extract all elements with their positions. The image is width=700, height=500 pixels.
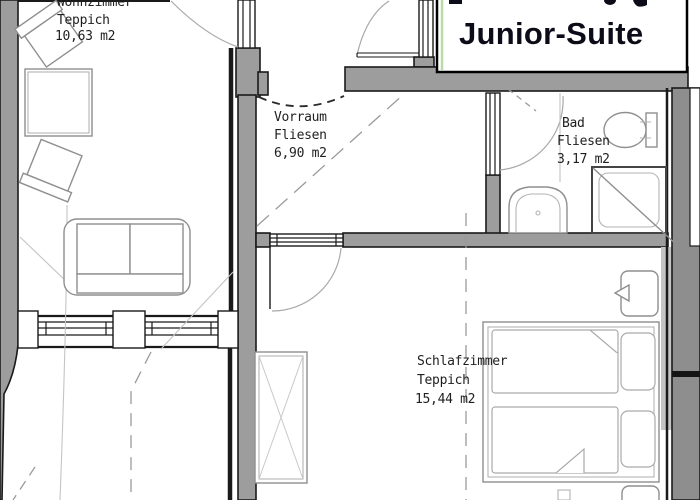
room-floor: Teppich [57, 13, 110, 28]
room-name: Vorraum [274, 110, 327, 125]
wall-stub-bedroom-door [256, 233, 270, 247]
table-outer [25, 69, 92, 136]
bed-pillow-top [621, 333, 655, 390]
sofa-back-cushion-left [77, 224, 130, 274]
door-frame-rect [419, 0, 433, 57]
floor-plan-screenshot: Wohnzimmer Teppich 10,63 m2 Vorraum Flie… [0, 0, 700, 500]
toilet-bowl [604, 113, 646, 148]
door-frame-rect [238, 0, 255, 48]
table [25, 69, 92, 136]
room-name: Wohnzimmer [57, 0, 133, 10]
neighbor-space-notch [690, 88, 700, 246]
room-label-vorraum: Vorraum Fliesen 6,90 m2 [274, 110, 327, 161]
door-frame-livingroom-top [238, 0, 255, 48]
room-area: 6,90 m2 [274, 146, 327, 161]
wall-center-vertical [238, 95, 256, 500]
door-frame-rect [270, 234, 343, 246]
title-block: Junior-Suite [437, 0, 687, 72]
nightstand-body [622, 486, 659, 500]
floor-plan-drawing: Wohnzimmer Teppich 10,63 m2 Vorraum Flie… [0, 0, 700, 500]
door-frame-rect [486, 93, 500, 175]
window-center-post [113, 311, 145, 348]
toilet-tank [646, 113, 657, 147]
door-frame-entry [419, 0, 433, 57]
toilet [604, 113, 657, 148]
sofa-seat [77, 274, 183, 293]
bed-pillow-bottom [621, 411, 655, 467]
wall-door-jamb-top [236, 48, 260, 97]
wall-right-divider-line [672, 371, 700, 377]
door-frame-bath [486, 93, 500, 175]
suite-title: Junior-Suite [459, 16, 643, 51]
sofa-back-cushion-right [130, 224, 183, 274]
wardrobe [255, 352, 307, 483]
nightstand-top [615, 271, 658, 316]
room-area: 10,63 m2 [55, 29, 115, 44]
sofa [64, 219, 190, 295]
bed-duvet-top [492, 330, 618, 393]
room-area: 3,17 m2 [557, 152, 610, 167]
room-name: Schlafzimmer [417, 354, 508, 369]
window-jamb-right [218, 311, 238, 348]
room-floor: Teppich [417, 373, 470, 388]
wall-stub-vorraum [258, 72, 268, 95]
text-fragment-mark [449, 0, 462, 4]
wall-entry-sill [414, 57, 434, 67]
room-floor: Fliesen [557, 134, 610, 149]
room-name: Bad [562, 116, 585, 131]
sink [509, 187, 567, 233]
window-jamb-left [18, 311, 38, 348]
bed-duvet-bottom [492, 407, 618, 473]
room-floor: Fliesen [274, 128, 327, 143]
double-bed [483, 322, 659, 482]
door-frame-bedroom [270, 234, 343, 246]
wall-bath-jamb-lower [486, 175, 500, 235]
wall-bath-bedroom [343, 233, 668, 247]
room-area: 15,44 m2 [415, 392, 475, 407]
